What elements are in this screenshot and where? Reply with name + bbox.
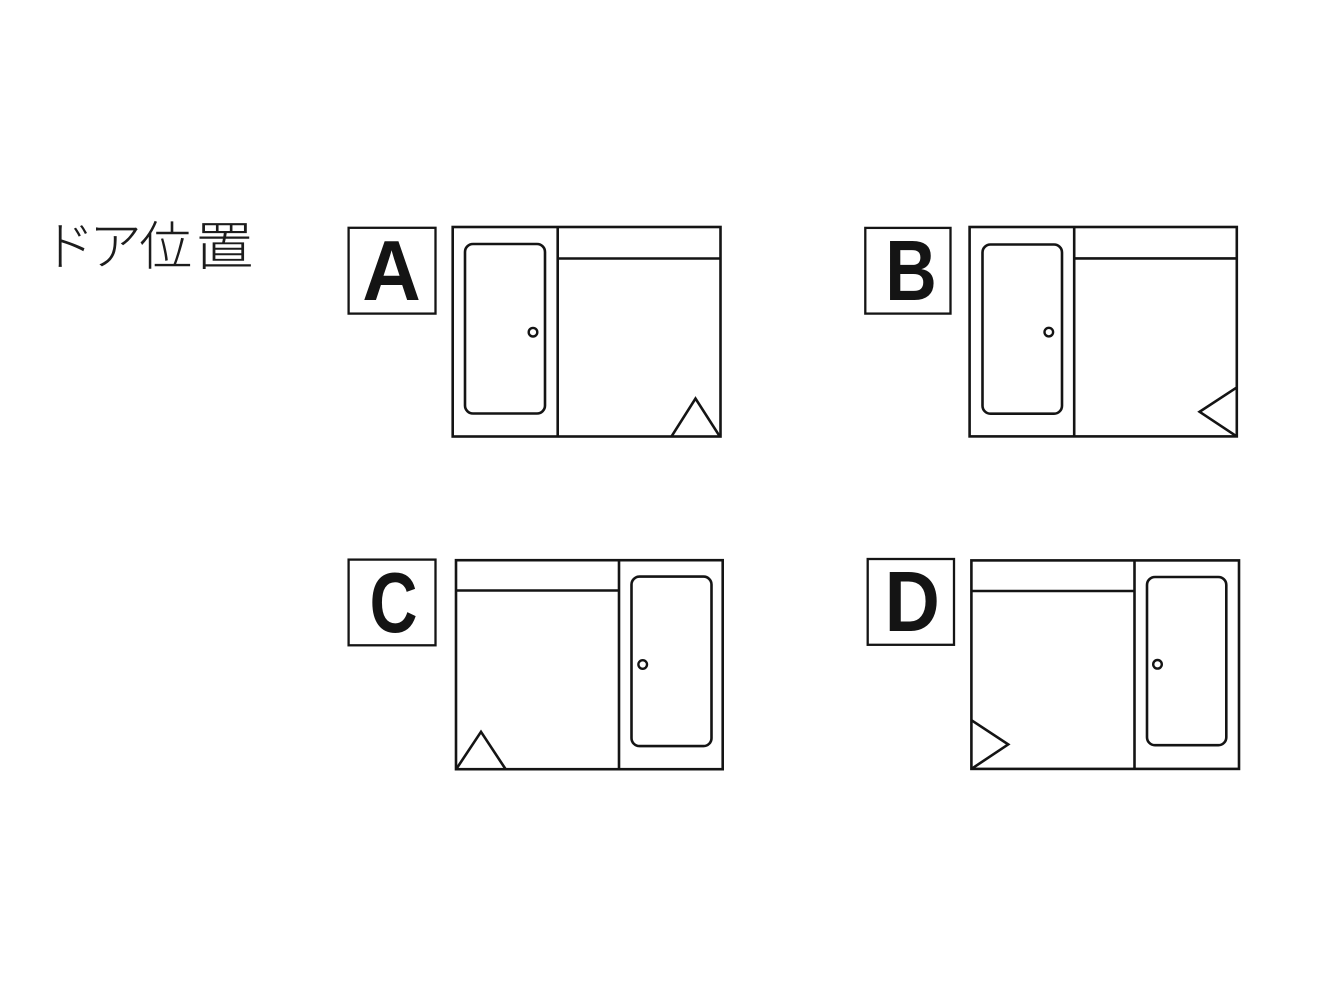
svg-text:D: D	[885, 555, 940, 650]
svg-text:B: B	[885, 223, 937, 318]
svg-text:A: A	[362, 223, 421, 318]
svg-text:C: C	[370, 556, 418, 651]
